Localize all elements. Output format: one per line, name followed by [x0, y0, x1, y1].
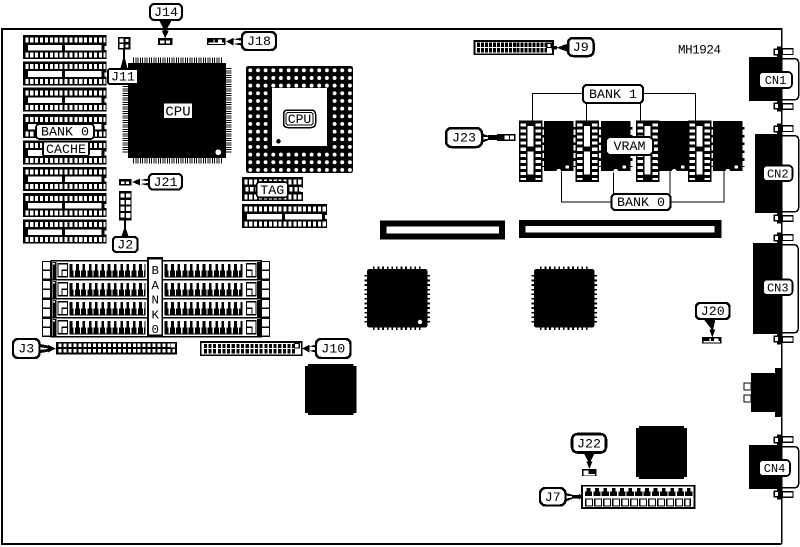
- svg-text:0: 0: [151, 323, 158, 337]
- svg-text:J23: J23: [452, 131, 476, 146]
- svg-text:CN1: CN1: [765, 74, 787, 88]
- svg-text:J2: J2: [117, 238, 133, 253]
- svg-text:VRAM: VRAM: [614, 139, 646, 154]
- svg-text:J7: J7: [545, 490, 561, 505]
- svg-text:CPU: CPU: [165, 104, 190, 120]
- svg-text:J3: J3: [18, 342, 34, 357]
- svg-text:J10: J10: [321, 342, 345, 357]
- svg-text:CACHE: CACHE: [46, 142, 86, 157]
- svg-text:J21: J21: [154, 175, 178, 190]
- svg-text:BANK 0: BANK 0: [41, 125, 89, 140]
- svg-text:A: A: [151, 279, 159, 293]
- svg-text:J9: J9: [573, 40, 589, 55]
- svg-text:CN4: CN4: [764, 462, 786, 476]
- svg-text:B: B: [151, 264, 158, 278]
- svg-text:K: K: [151, 308, 159, 322]
- svg-text:BANK 1: BANK 1: [589, 87, 637, 102]
- svg-text:CPU: CPU: [288, 112, 311, 127]
- svg-text:CN3: CN3: [767, 281, 789, 295]
- svg-text:N: N: [151, 294, 158, 308]
- svg-text:BANK 0: BANK 0: [617, 195, 665, 210]
- svg-text:J11: J11: [111, 70, 135, 85]
- svg-text:J20: J20: [701, 304, 725, 319]
- svg-text:J18: J18: [247, 34, 271, 49]
- svg-text:J22: J22: [577, 436, 601, 451]
- svg-text:J14: J14: [154, 5, 178, 20]
- svg-text:CN2: CN2: [767, 167, 789, 181]
- svg-text:TAG: TAG: [260, 183, 284, 198]
- svg-text:MH1924: MH1924: [678, 44, 721, 58]
